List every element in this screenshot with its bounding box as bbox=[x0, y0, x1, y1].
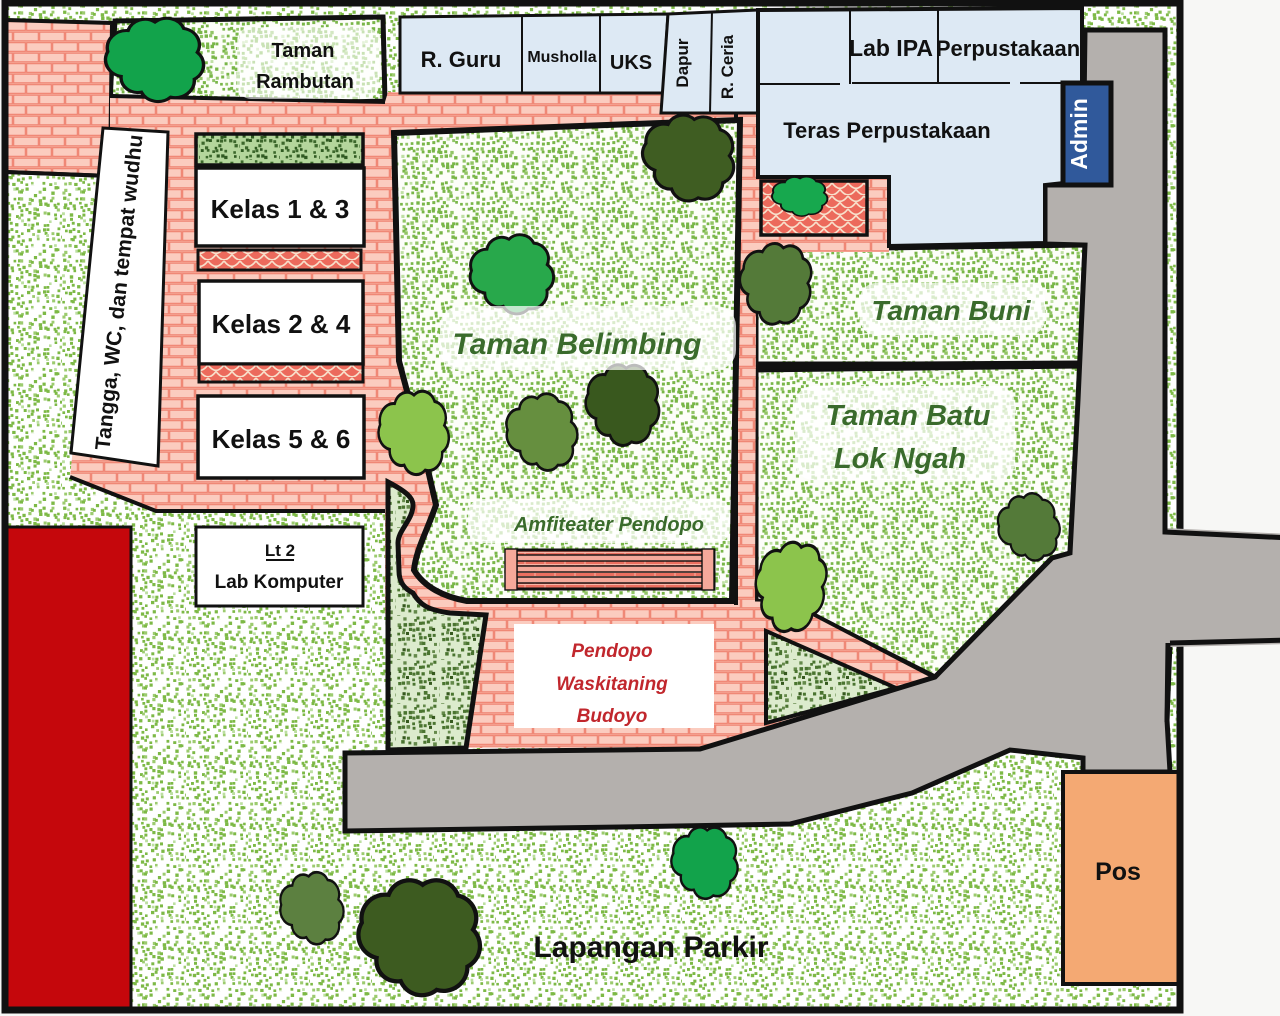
svg-text:Taman Belimbing: Taman Belimbing bbox=[453, 328, 702, 361]
svg-text:Kelas 2 & 4: Kelas 2 & 4 bbox=[212, 309, 351, 339]
svg-text:Perpustakaan: Perpustakaan bbox=[936, 36, 1080, 61]
svg-text:Musholla: Musholla bbox=[527, 49, 596, 66]
svg-text:Lt 2: Lt 2 bbox=[265, 541, 295, 560]
svg-text:Pendopo: Pendopo bbox=[571, 641, 652, 662]
svg-text:UKS: UKS bbox=[610, 52, 652, 74]
svg-text:Lab Komputer: Lab Komputer bbox=[215, 572, 344, 593]
svg-text:Lab IPA: Lab IPA bbox=[849, 35, 933, 61]
svg-text:R. Guru: R. Guru bbox=[421, 47, 502, 72]
svg-text:Lapangan Parkir: Lapangan Parkir bbox=[533, 931, 768, 964]
svg-text:Rambutan: Rambutan bbox=[256, 71, 354, 93]
svg-text:Admin: Admin bbox=[1066, 98, 1092, 170]
svg-text:Amfiteater Pendopo: Amfiteater Pendopo bbox=[513, 514, 704, 536]
svg-text:R. Ceria: R. Ceria bbox=[718, 34, 737, 99]
svg-text:Kelas 5 & 6: Kelas 5 & 6 bbox=[212, 424, 351, 454]
svg-text:Taman Batu: Taman Batu bbox=[826, 400, 991, 432]
svg-text:Teras Perpustakaan: Teras Perpustakaan bbox=[783, 118, 990, 143]
svg-text:Kelas 1 & 3: Kelas 1 & 3 bbox=[211, 194, 350, 224]
svg-text:Dapur: Dapur bbox=[673, 38, 692, 88]
svg-text:Waskitaning: Waskitaning bbox=[556, 674, 668, 695]
svg-text:Taman: Taman bbox=[272, 40, 335, 62]
svg-text:Budoyo: Budoyo bbox=[577, 706, 648, 727]
svg-text:Lok Ngah: Lok Ngah bbox=[834, 443, 966, 475]
svg-text:Taman Buni: Taman Buni bbox=[871, 295, 1031, 326]
svg-text:Pos: Pos bbox=[1095, 858, 1141, 886]
